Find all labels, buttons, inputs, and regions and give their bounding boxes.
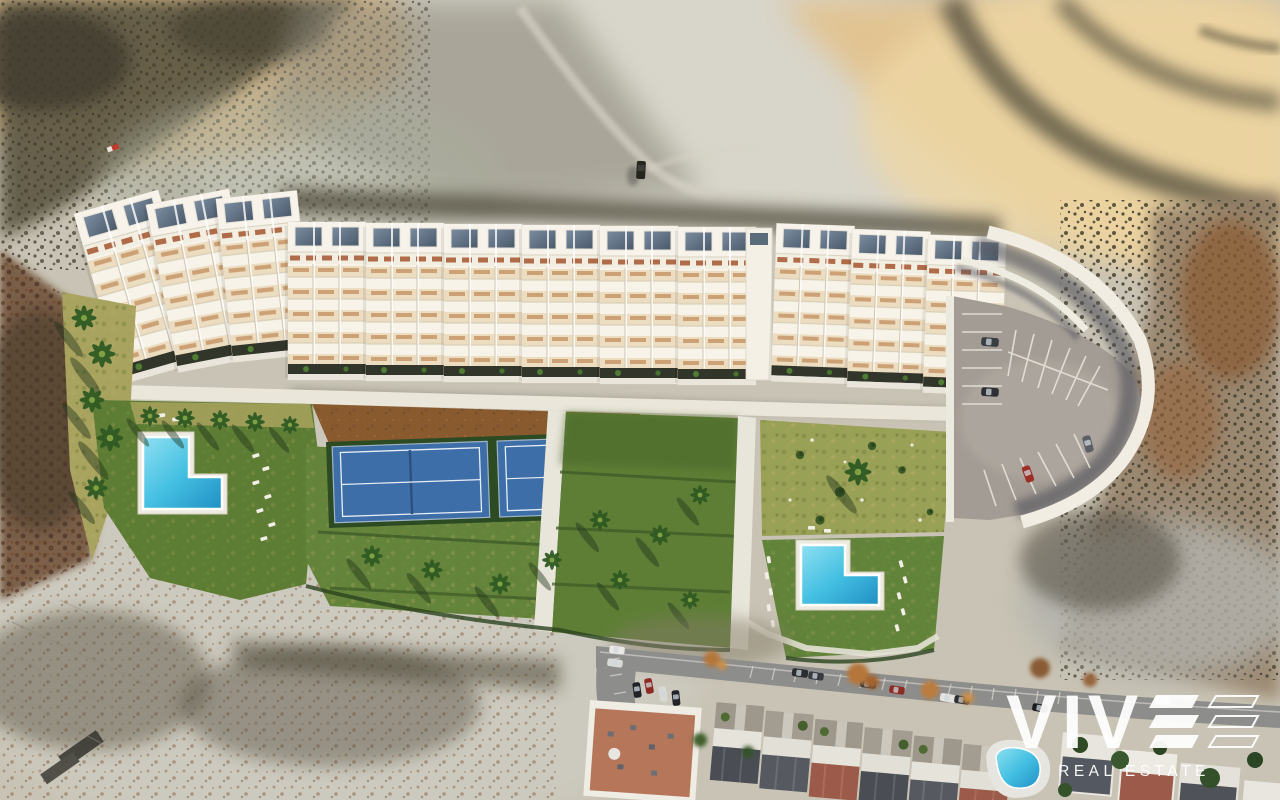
scene-canvas: VIV REAL ESTATE (0, 0, 1280, 800)
watermark-brand-letters: VIV (1006, 680, 1144, 765)
watermark-subtitle: REAL ESTATE (1058, 763, 1210, 780)
watermark-e-solid-bars (1149, 695, 1199, 748)
entrance-tower (746, 228, 772, 380)
house-terracotta-roof (583, 700, 701, 800)
aerial-development-render: VIV REAL ESTATE (0, 0, 1280, 800)
